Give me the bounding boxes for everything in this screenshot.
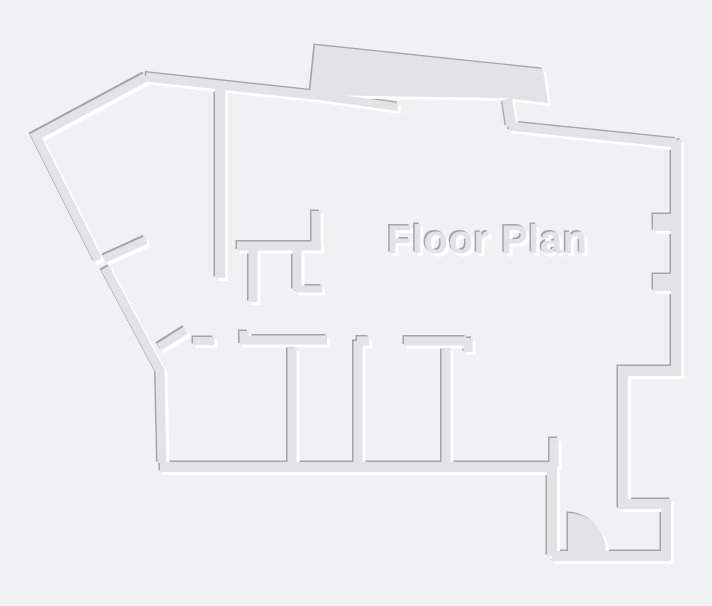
floor-plan-canvas: Floor Plan <box>0 0 712 606</box>
floor-plan-page: Floor Plan <box>0 0 712 606</box>
